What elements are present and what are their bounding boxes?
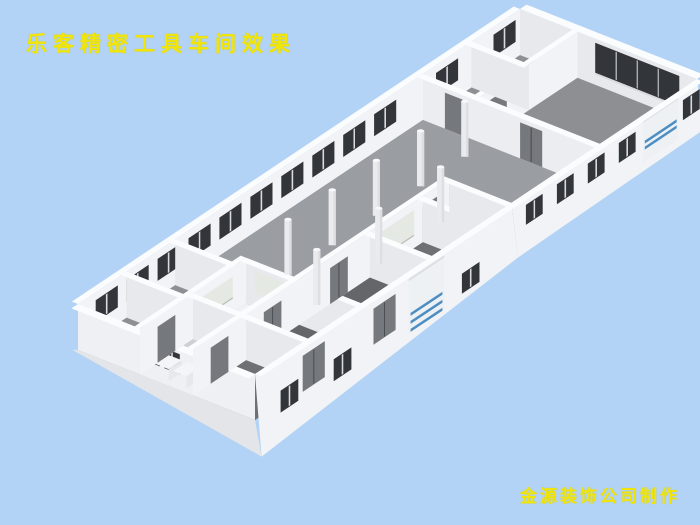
door-gap (338, 263, 339, 298)
pillar-top (375, 207, 382, 210)
window-frame (691, 95, 693, 114)
window-frame (261, 190, 263, 211)
window-frame (230, 211, 232, 232)
window-frame (342, 354, 344, 375)
window-frame (289, 385, 291, 406)
window-frame (292, 169, 294, 190)
pillar-shade (380, 208, 382, 264)
pillar-shade (442, 167, 444, 223)
window-frame (354, 128, 356, 149)
window-frame (626, 138, 628, 157)
door-gap (313, 349, 314, 384)
pillar-shade (422, 131, 424, 187)
door-gap (384, 302, 385, 337)
workshop-3d-render (0, 0, 700, 525)
window-frame (168, 252, 170, 273)
pillar-shade (318, 250, 320, 306)
pillar-shade (466, 101, 468, 157)
render-canvas: 乐客精密工具车间效果 金源装饰公司制作 (0, 0, 700, 525)
pillar-top (313, 248, 320, 251)
window-frame (470, 268, 472, 287)
window-mullion (637, 60, 638, 89)
window-mullion (616, 52, 618, 81)
pillar-shade (289, 219, 291, 274)
pillar-shade (333, 190, 335, 246)
window-mullion (658, 68, 659, 97)
window-frame (106, 293, 108, 314)
window-frame (534, 200, 536, 219)
door-gap (531, 128, 532, 162)
window-frame (565, 179, 567, 198)
pillar-top (284, 218, 291, 221)
pillar-top (373, 159, 380, 162)
window-frame (504, 28, 506, 49)
title-text: 乐客精密工具车间效果 (26, 28, 296, 58)
door (445, 93, 463, 136)
pillar-top (329, 188, 336, 191)
credit-text: 金源装饰公司制作 (520, 482, 680, 507)
window-frame (323, 149, 325, 170)
pillar-top (461, 100, 468, 103)
pillar-top (417, 129, 424, 132)
pillar-top (437, 165, 444, 168)
window-frame (595, 159, 597, 178)
window-frame (384, 107, 386, 128)
